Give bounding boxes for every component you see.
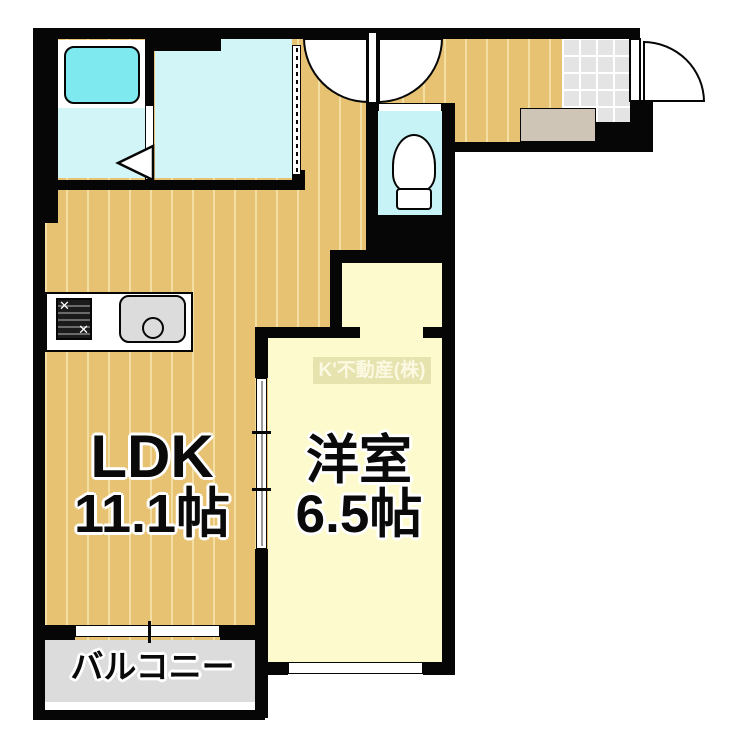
ldk-size: 11.1帖 <box>40 487 264 542</box>
western-room-size: 6.5帖 <box>264 488 454 542</box>
balcony-window-tick <box>148 621 151 643</box>
wall-balcony-bottom <box>33 710 265 720</box>
entry-step <box>520 108 596 142</box>
balcony-label: バルコニー <box>50 650 255 684</box>
wall-balcony-window-left <box>33 625 75 640</box>
watermark: K'不動産(株) <box>313 357 431 384</box>
wall-right <box>442 103 455 675</box>
wall-top <box>33 28 640 39</box>
stove-icon: ✕ ✕ <box>56 298 92 340</box>
faucet-icon <box>142 317 164 339</box>
wall-divider-upper <box>255 338 268 378</box>
wall-western-bottom-right <box>423 662 453 675</box>
ldk-name: LDK <box>40 426 264 487</box>
wall-washroom-notch <box>145 28 221 51</box>
door-post <box>367 31 378 104</box>
washroom-accordion-door <box>292 45 301 175</box>
bath-folding-door-icon <box>112 142 158 184</box>
toilet-tank-icon <box>396 188 432 210</box>
toilet-icon <box>392 134 436 192</box>
wall-western-bottom-left <box>268 662 288 675</box>
western-room-name: 洋室 <box>264 434 454 488</box>
entry-door-leaf <box>629 38 641 102</box>
wall-alcove-stub-left <box>255 327 360 338</box>
wall-bath-divider <box>145 39 154 105</box>
ldk-label: LDK 11.1帖 <box>40 426 264 542</box>
wall-toilet-left <box>366 103 378 228</box>
wall-alcove-stub-right <box>423 327 453 338</box>
western-room-window <box>288 662 423 674</box>
floor-plan: ✕ ✕ LDK 11.1帖 洋室 6.5帖 バルコニー K'不動産(株) <box>0 0 738 744</box>
entry-door-swing <box>643 41 705 102</box>
wall-alcove-vertical <box>330 250 342 338</box>
wall-entry-right <box>630 100 653 152</box>
wall-balcony-window-right <box>220 625 268 640</box>
washroom-floor <box>155 38 292 178</box>
bathtub-icon <box>64 46 140 104</box>
wall-ldk-top <box>33 180 305 190</box>
western-room-label: 洋室 6.5帖 <box>264 434 454 542</box>
wall-alcove-top <box>330 250 368 263</box>
wall-left-upper <box>33 28 58 223</box>
